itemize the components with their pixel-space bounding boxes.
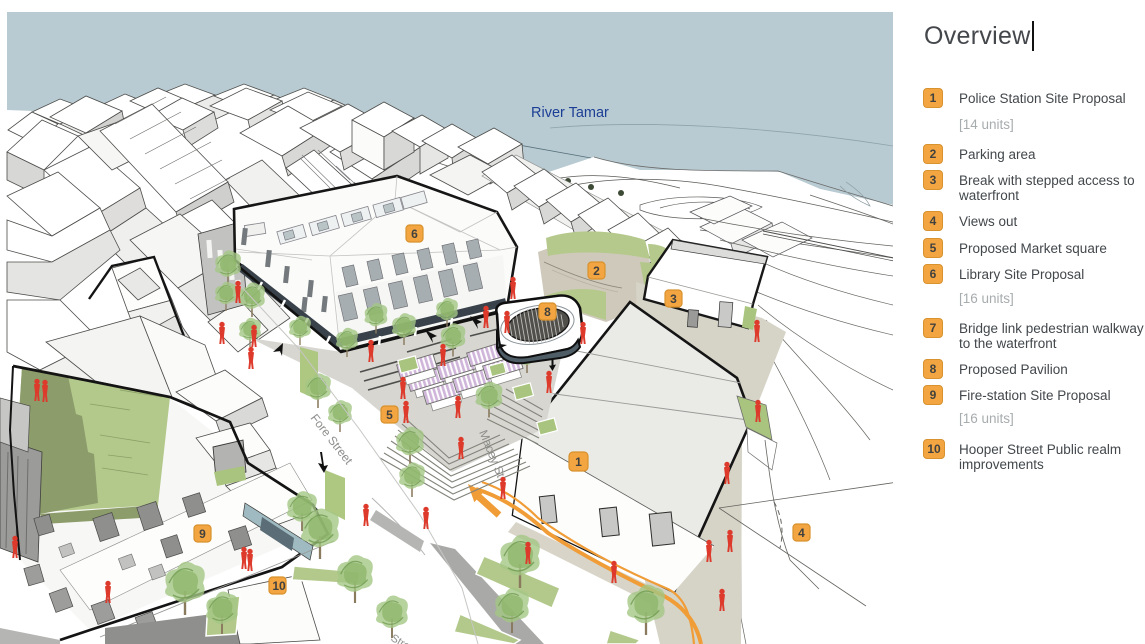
svg-text:5: 5 <box>386 408 393 422</box>
svg-text:3: 3 <box>670 292 677 306</box>
svg-text:1: 1 <box>575 455 582 469</box>
svg-text:9: 9 <box>199 527 206 541</box>
svg-text:6: 6 <box>411 227 418 241</box>
svg-text:10: 10 <box>272 579 286 593</box>
svg-text:8: 8 <box>544 305 551 319</box>
svg-text:Street: Street <box>389 632 420 644</box>
svg-text:River Tamar: River Tamar <box>531 105 609 121</box>
svg-text:4: 4 <box>798 526 805 540</box>
svg-text:2: 2 <box>593 264 600 278</box>
